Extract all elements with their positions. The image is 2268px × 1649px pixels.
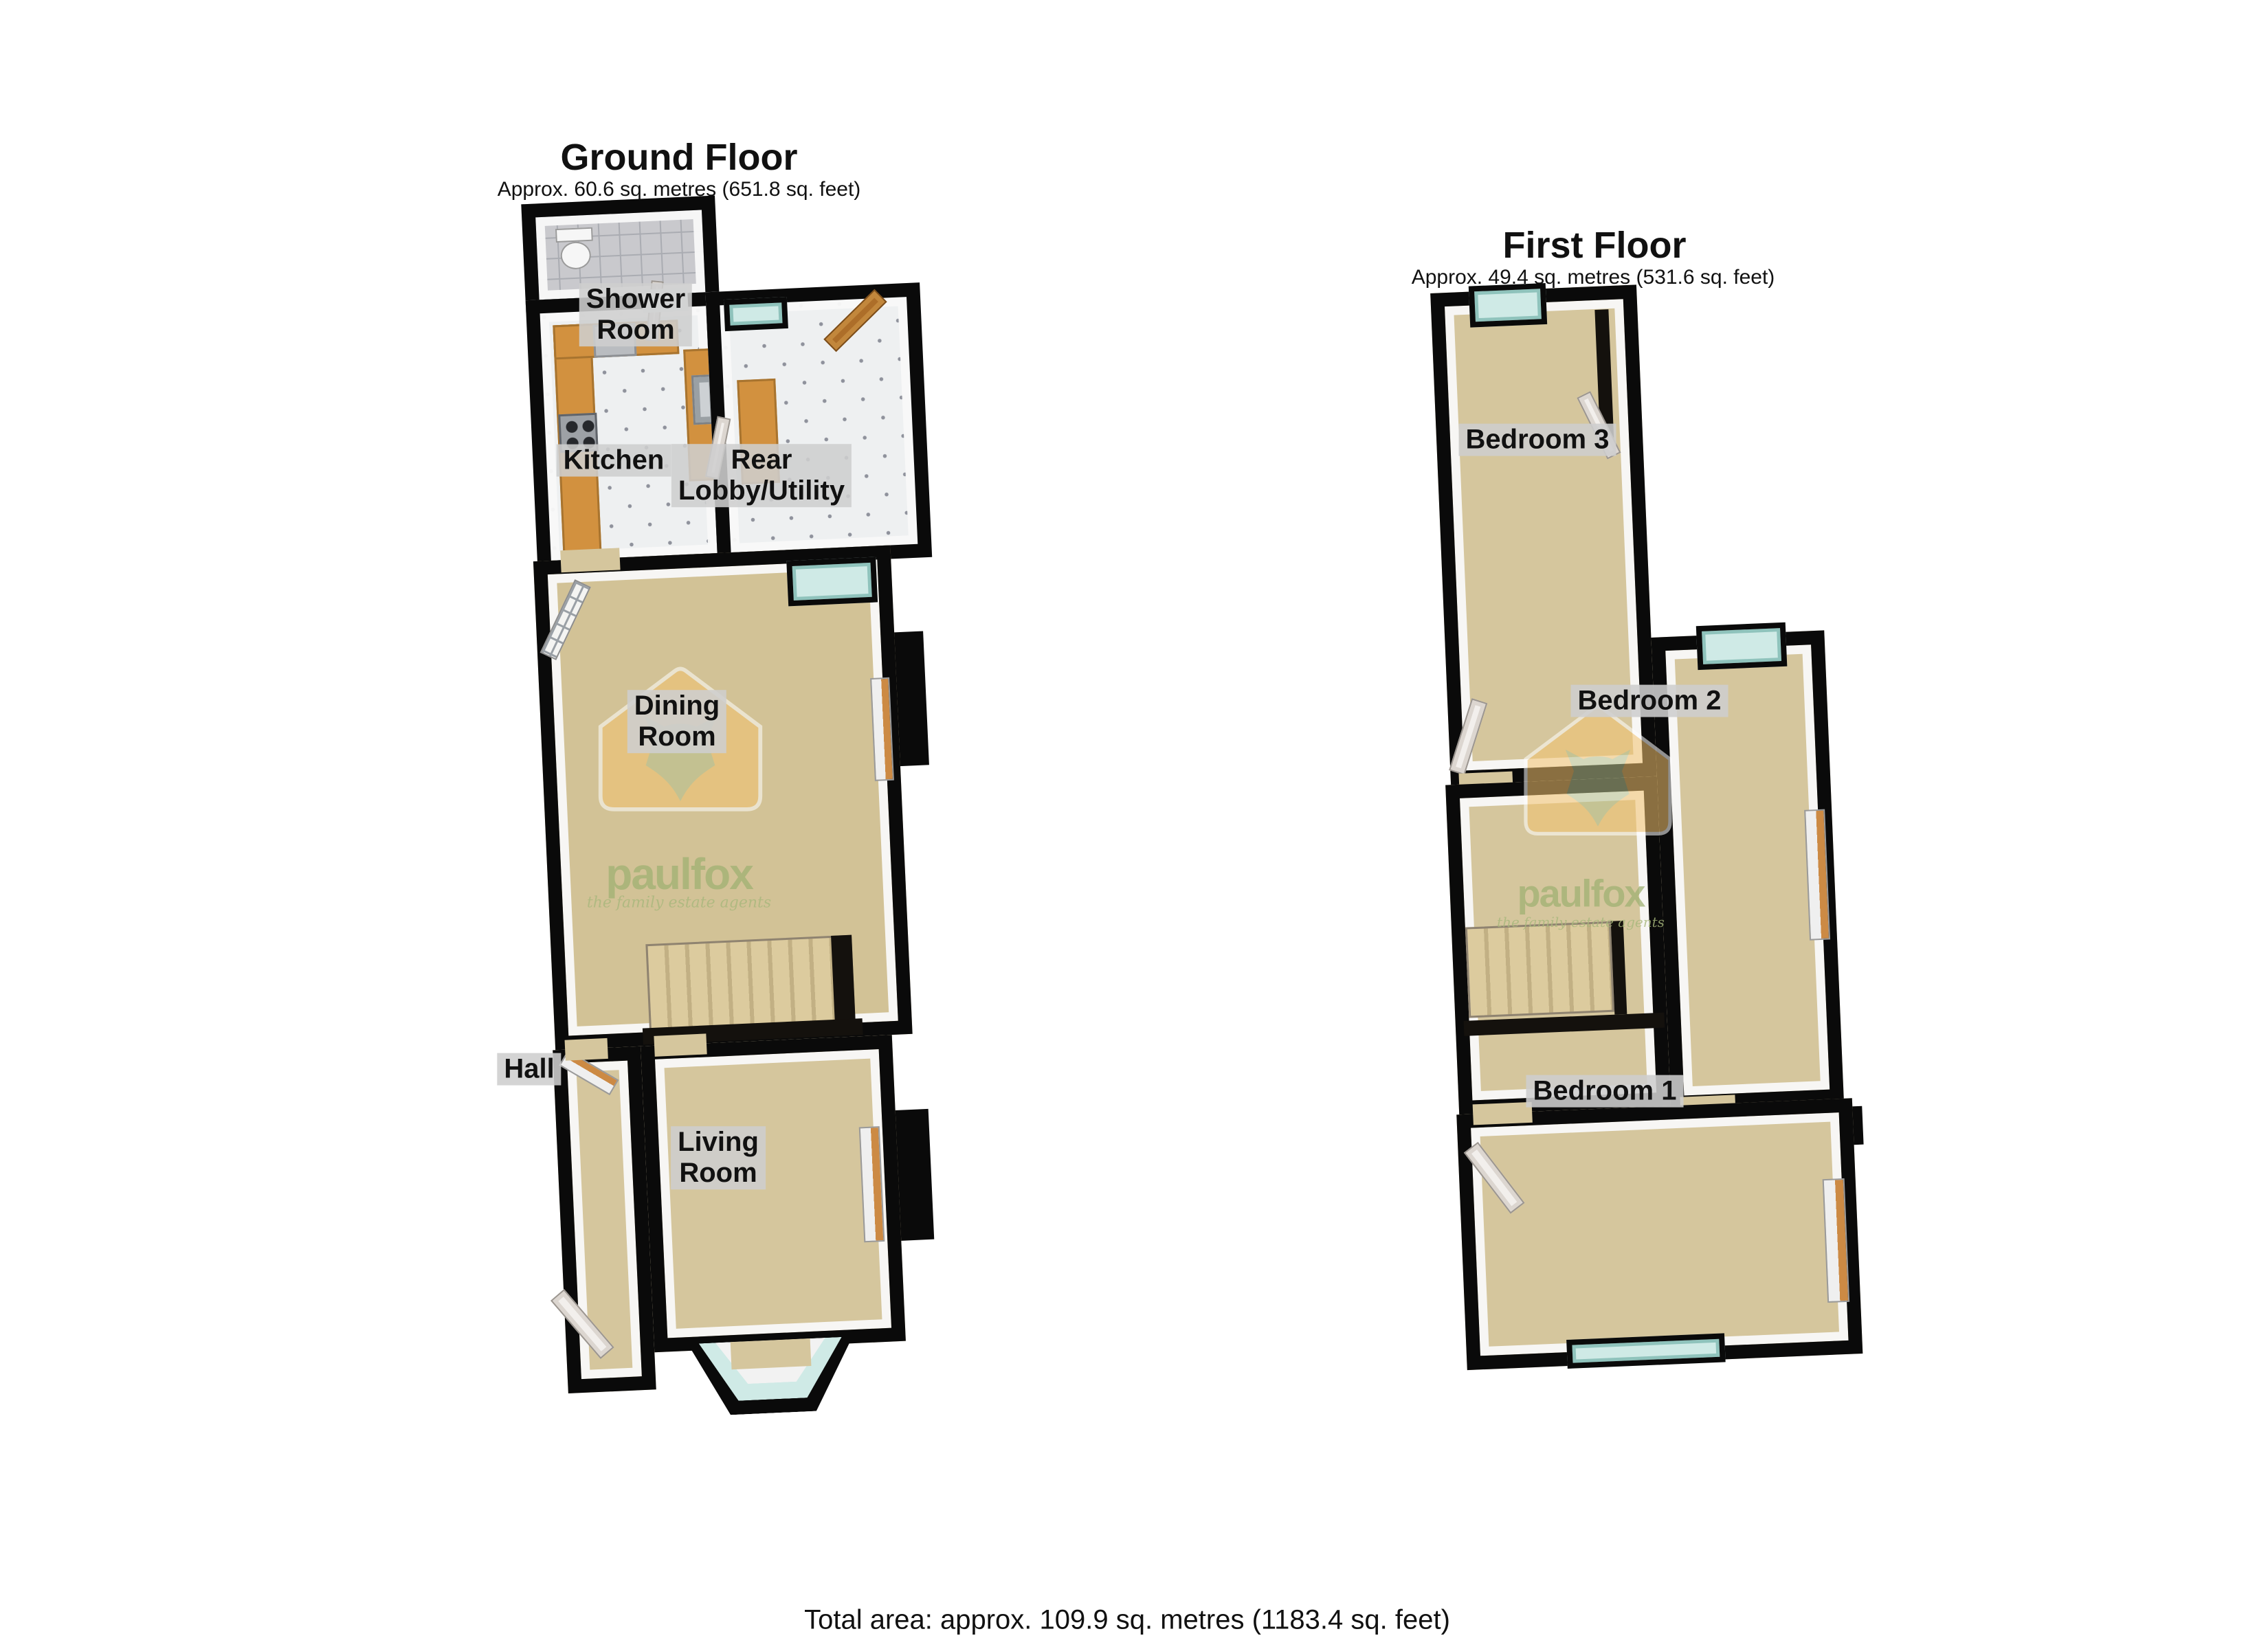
kitchen-dining-doorway — [560, 548, 620, 572]
floorplan-page: paulfox the family estate agents paulfox… — [0, 0, 2268, 1649]
label-shower-room: Shower Room — [579, 283, 692, 346]
room-bedroom1 — [1456, 1098, 1863, 1370]
toilet-bowl-icon — [560, 241, 592, 270]
watermark-tagline-first: the family estate agents — [1497, 914, 1665, 930]
bedroom3-window-glass — [1469, 283, 1547, 328]
bedroom2-radiator — [1804, 809, 1830, 941]
label-living-room: Living Room — [671, 1126, 766, 1189]
toilet-icon — [555, 227, 593, 243]
bedroom2-window-glass — [1696, 622, 1788, 670]
ground-floor-subtitle: Approx. 60.6 sq. metres (651.8 sq. feet) — [498, 178, 861, 201]
staircase — [645, 935, 855, 1031]
dining-radiator — [870, 677, 894, 781]
bedroom1-doorway — [1473, 1102, 1533, 1125]
total-area-text: Total area: approx. 109.9 sq. metres (11… — [804, 1605, 1450, 1636]
hall-doorway — [565, 1038, 608, 1061]
ground-floor-title: Ground Floor — [561, 136, 798, 179]
living-doorway — [654, 1033, 707, 1056]
landing-staircase — [1465, 921, 1614, 1018]
label-rear-lobby: Rear Lobby/Utility — [671, 444, 852, 507]
bay-window — [688, 1336, 856, 1417]
bedroom1-radiator — [1823, 1178, 1850, 1303]
watermark-brand-first: paulfox — [1517, 871, 1644, 916]
lobby-window-glass — [724, 297, 788, 331]
first-floor-title: First Floor — [1503, 224, 1687, 267]
label-bedroom1: Bedroom 1 — [1526, 1075, 1684, 1108]
bay-window-floor — [731, 1338, 812, 1369]
label-dining-room: Dining Room — [627, 690, 726, 753]
room-living — [641, 1035, 906, 1352]
living-radiator — [859, 1126, 885, 1242]
watermark-tagline-ground: the family estate agents — [587, 895, 771, 912]
watermark-brand-ground: paulfox — [605, 849, 753, 899]
label-bedroom3: Bedroom 3 — [1459, 424, 1616, 456]
label-hall: Hall — [497, 1053, 561, 1086]
bedroom1-window-glass — [1566, 1333, 1726, 1369]
first-floor-subtitle: Approx. 49.4 sq. metres (531.6 sq. feet) — [1412, 266, 1775, 289]
label-kitchen: Kitchen — [557, 445, 671, 477]
stairs-newel-wall — [831, 935, 856, 1022]
dining-window-glass — [786, 557, 878, 606]
label-bedroom2: Bedroom 2 — [1571, 685, 1728, 717]
